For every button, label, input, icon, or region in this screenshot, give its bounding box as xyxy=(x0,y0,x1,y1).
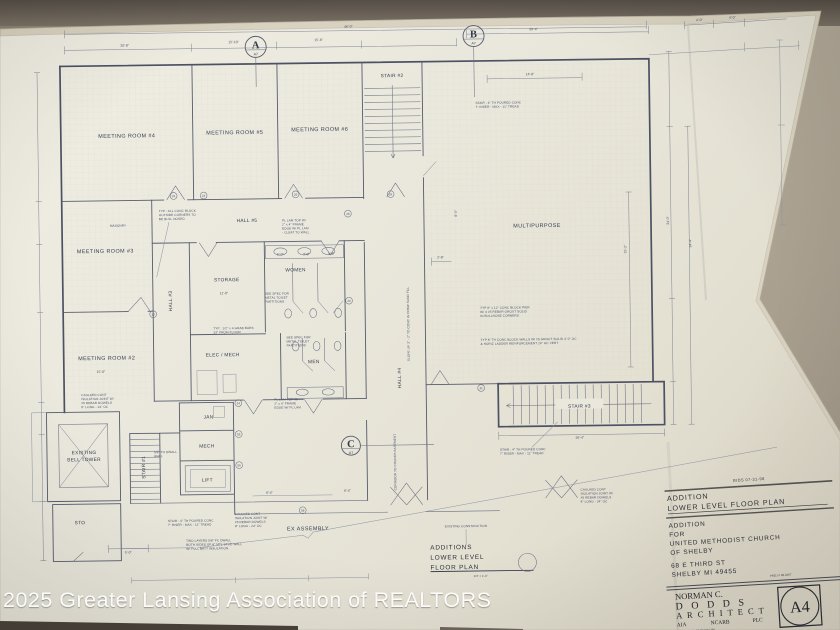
watermark: 2025 Greater Lansing Association of REAL… xyxy=(0,588,840,613)
blueprint-photo: 20'-8" 15'-10" 15'-6" 46'-0" 39'-4" 14'-… xyxy=(0,0,840,630)
photo-effects xyxy=(0,0,840,630)
blueprint-canvas: 20'-8" 15'-10" 15'-6" 46'-0" 39'-4" 14'-… xyxy=(0,0,840,630)
